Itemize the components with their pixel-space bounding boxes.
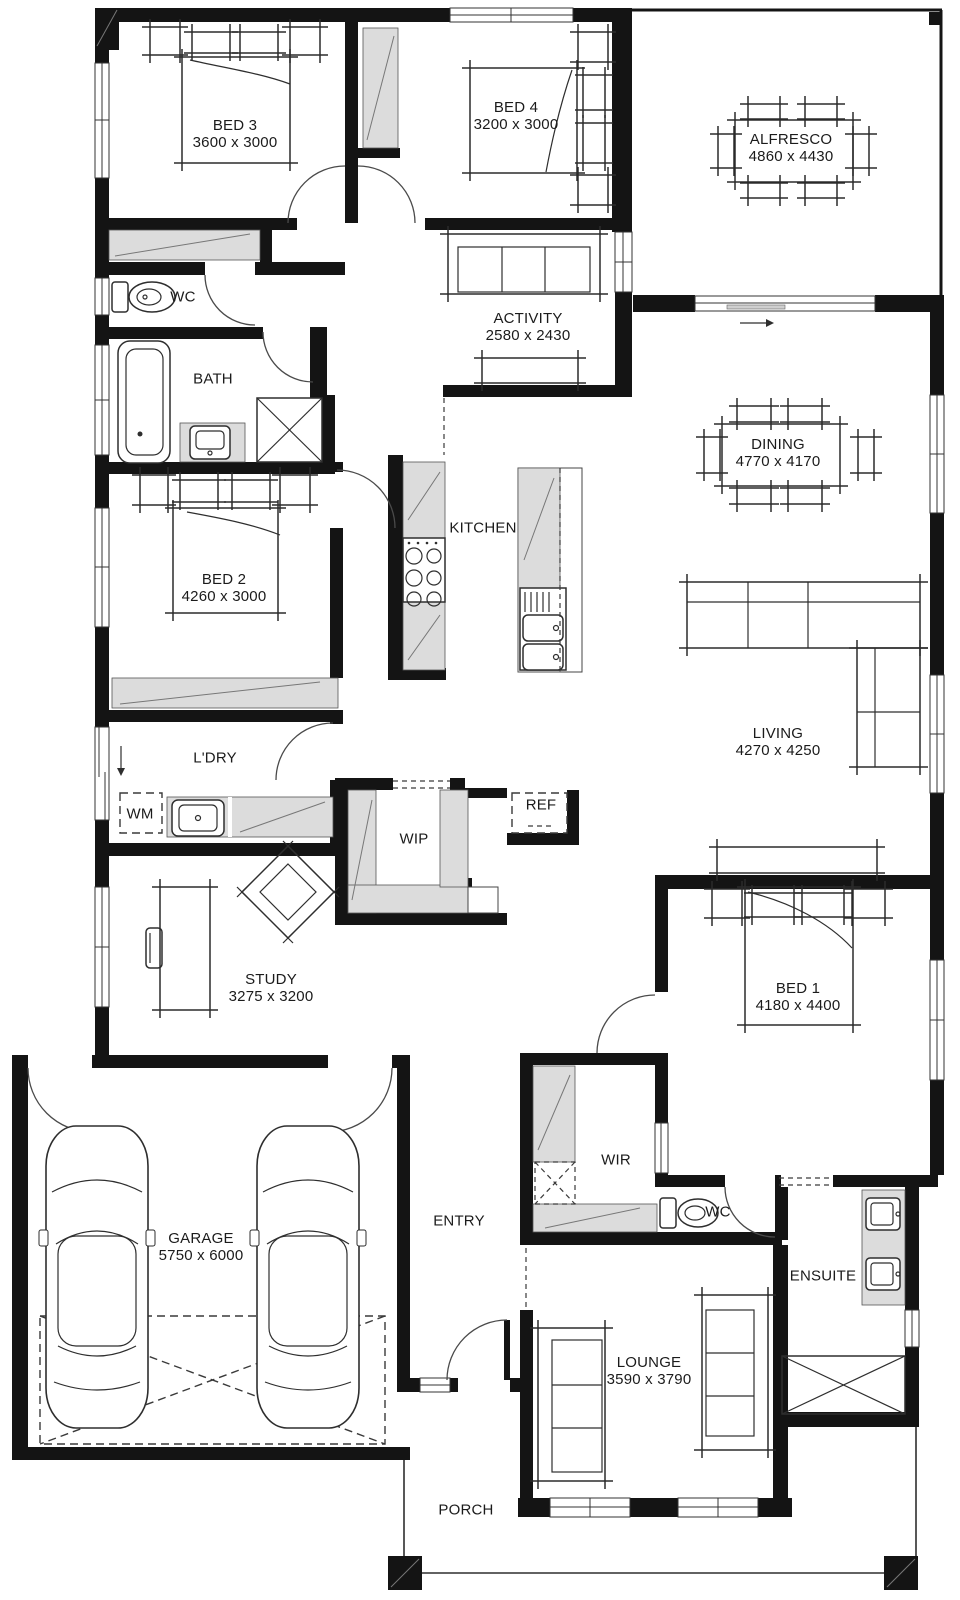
window-lounge-left (550, 1498, 630, 1517)
cars (39, 1126, 366, 1428)
wir-shelves (533, 1066, 657, 1232)
window-lounge-right (678, 1498, 758, 1517)
cavity-slider-wir (655, 1123, 668, 1173)
bathtub (118, 341, 170, 463)
robe-bed3 (109, 230, 260, 260)
room-label-bed3: BED 33600 x 3000 (193, 117, 278, 151)
car-right (250, 1126, 366, 1428)
bed2-fold (187, 512, 280, 535)
door-bed2 (337, 470, 395, 528)
room-label-ensuite: ENSUITE (790, 1268, 856, 1285)
room-label-porch: PORCH (438, 1502, 493, 1519)
pantry-shelves (348, 790, 498, 913)
window-living (930, 675, 944, 793)
room-label-alfresco: ALFRESCO4860 x 4430 (749, 131, 834, 165)
door-wc2 (725, 1187, 775, 1237)
sliding-door-alfresco (695, 296, 875, 311)
wir-mirror-box (535, 1162, 575, 1204)
ensuite-sink-2 (866, 1258, 900, 1290)
room-label-kitchen: KITCHEN (449, 520, 516, 537)
lounge-sofa2-seat (706, 1310, 754, 1436)
room-label-bed2: BED 24260 x 3000 (182, 571, 267, 605)
room-label-entry: ENTRY (433, 1213, 485, 1230)
door-bath (263, 332, 313, 382)
window-bed2 (95, 508, 109, 627)
window-dining (930, 395, 944, 513)
study-display-diamond (237, 841, 339, 943)
room-label-study: STUDY3275 x 3200 (229, 971, 314, 1005)
shower-ensuite (782, 1356, 905, 1414)
room-label-activity: ACTIVITY2580 x 2430 (486, 310, 571, 344)
window-ensuite (905, 1310, 919, 1347)
lounge-sofa1-seat (552, 1340, 602, 1472)
floor-plan-drawing (0, 0, 960, 1600)
robe-bed2 (112, 678, 338, 708)
door-bed4 (358, 166, 415, 223)
room-label-wc: WC (170, 289, 195, 306)
room-label-wir: WIR (601, 1152, 631, 1169)
room-label-wm: WM (126, 806, 153, 823)
room-label-living: LIVING4270 x 4250 (736, 725, 821, 759)
bed1-fold (748, 892, 852, 948)
room-label-ref: REF (526, 797, 557, 814)
room-label-bed4: BED 43200 x 3000 (474, 99, 559, 133)
floor-plan: BED 33600 x 3000 BED 43200 x 3000 ALFRES… (0, 0, 960, 1600)
laundry-sink (172, 800, 224, 836)
sliding-door-laundry (95, 727, 109, 820)
car-left (39, 1126, 155, 1428)
room-label-lounge: LOUNGE3590 x 3790 (607, 1354, 692, 1388)
door-garage-right (328, 1068, 392, 1132)
toilet-wc1 (112, 282, 175, 312)
bath-sink (190, 426, 230, 459)
room-label-ldry: L'DRY (193, 750, 237, 767)
room-label-garage: GARAGE5750 x 6000 (159, 1230, 244, 1264)
cooktop (403, 538, 445, 606)
room-label-wip: WIP (400, 831, 429, 848)
room-label-dining: DINING4770 x 4170 (736, 436, 821, 470)
door-bed3 (288, 166, 345, 223)
door-wc1 (205, 275, 255, 325)
door-laundry (276, 723, 333, 780)
robe-bed4 (363, 28, 398, 148)
window-entry-sidelight (420, 1378, 450, 1392)
window-wc (95, 278, 109, 315)
kitchen-sink (520, 588, 566, 670)
window-study (95, 887, 109, 1007)
bed3-fold (190, 60, 290, 84)
door-bed1 (597, 995, 655, 1053)
window-bed1 (930, 960, 944, 1080)
shower-bath (257, 398, 322, 462)
laundry-door-arrow-icon (117, 746, 125, 776)
door-garage-left (28, 1068, 92, 1132)
front-door (447, 1320, 510, 1380)
window-bath (95, 345, 109, 455)
window-bed3 (95, 63, 109, 178)
ensuite-sink-1 (866, 1198, 900, 1230)
room-label-bath: BATH (193, 371, 233, 388)
activity-sofa-seat (458, 247, 590, 292)
room-label-bed1: BED 14180 x 4400 (756, 980, 841, 1014)
sliding-door-arrow-icon (740, 319, 774, 327)
room-label-wc2: WC (705, 1204, 730, 1221)
window-activity-alfresco (615, 232, 632, 292)
window-bed4 (450, 8, 573, 22)
